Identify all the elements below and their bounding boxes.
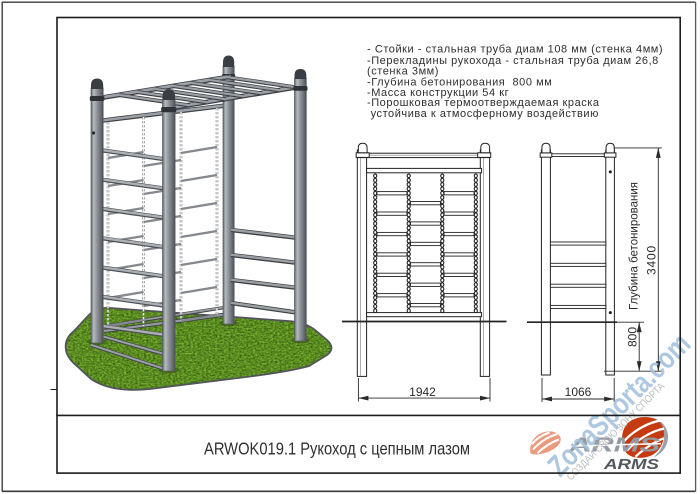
svg-text:- Стойки - стальная труба диам: - Стойки - стальная труба диам 108 мм (с…: [367, 43, 663, 55]
svg-text:ARMS: ARMS: [603, 457, 660, 473]
svg-text:3400: 3400: [645, 245, 659, 275]
svg-text:1066: 1066: [565, 385, 592, 399]
svg-text:Глубина бетонирования: Глубина бетонирования: [629, 182, 641, 310]
svg-text:800: 800: [626, 327, 640, 347]
svg-text:устойчива к атмосферному возде: устойчива к атмосферному воздействию: [367, 108, 599, 120]
svg-text:ARWOK019.1 Рукоход с цепным ла: ARWOK019.1 Рукоход с цепным лазом: [204, 438, 470, 458]
svg-text:1942: 1942: [409, 385, 436, 399]
